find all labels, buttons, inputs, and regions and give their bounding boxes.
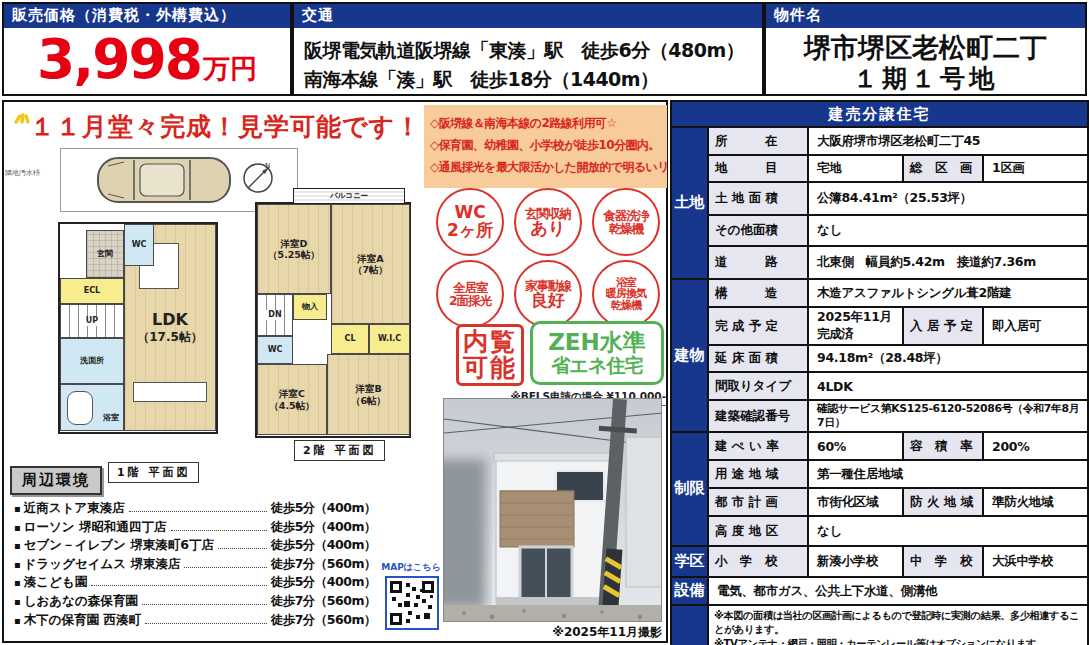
kitchen-counter	[133, 382, 207, 402]
spec-value: 木造アスファルトシングル葺2階建	[808, 279, 1088, 307]
badge-wc: WC2ヶ所	[436, 188, 504, 256]
property-name-line1: 堺市堺区老松町二丁	[766, 32, 1085, 64]
spec-value: 即入居可	[983, 307, 1088, 345]
spec-label: 構 造	[708, 279, 808, 307]
room-genkan: 玄関	[86, 230, 124, 278]
room-a: 洋室A（7帖）	[331, 204, 410, 324]
note-line: ※TVアンテナ・網戸・照明・カーテンレール等はオプションになります。	[714, 637, 1082, 645]
spec-label: 完 成 予 定	[708, 307, 808, 345]
badge-dishwasher: 食器洗浄乾燥機	[592, 188, 660, 256]
access-line-2: 南海本線「湊」駅 徒歩18分（1440m）	[304, 65, 752, 94]
plan1-caption: 1階 平面図	[108, 462, 199, 483]
spec-value: 4LDK	[808, 372, 1088, 400]
spec-label: 防 火 地 域	[903, 488, 983, 516]
badge-bath-dryer: 浴室暖房換気乾燥機	[592, 260, 660, 328]
spec-table: 建売分譲住宅 土地 所 在 大阪府堺市堺区老松町二丁45 地 目 宅地 総 区 …	[670, 100, 1089, 645]
room-senmenjo: 洗面所	[60, 338, 124, 384]
spec-value: 確認サービス第KS125-6120-52086号（令和7年8月7日）	[808, 400, 1088, 432]
plan-note: 隣地汚水枡	[5, 168, 40, 178]
price-header: 販売価格（消費税・外構費込）	[4, 4, 290, 28]
real-estate-flyer: 販売価格（消費税・外構費込） 3,998 万円 交通 阪堺電気軌道阪堺線「東湊」…	[0, 0, 1089, 645]
spec-group-equip: 設備	[671, 577, 708, 605]
spec-value: 1区画	[983, 155, 1088, 182]
badge-daylight: 全居室2面採光	[436, 260, 504, 328]
spec-label: その他面積	[708, 215, 808, 246]
headline: １１月堂々完成！見学可能です！	[30, 110, 421, 143]
spec-label: 所 在	[708, 127, 808, 155]
property-name-header: 物件名	[766, 4, 1085, 28]
access-box: 交通 阪堺電気軌道阪堺線「東湊」駅 徒歩6分（480m） 南海本線「湊」駅 徒歩…	[292, 2, 764, 96]
spec-label: 入 居 予 定	[903, 307, 983, 345]
spec-notes: ※本図の面積は当社の区画計画によるもので登記時に実測の結果、多少相違することがあ…	[708, 605, 1088, 645]
spec-value: 60%	[808, 432, 903, 460]
spec-label: 建 ぺ い 率	[708, 432, 808, 460]
spec-value: 200%	[983, 432, 1088, 460]
spec-label: 間取りタイプ	[708, 372, 808, 400]
spec-label: 道 路	[708, 246, 808, 279]
room-monoire: 物入	[293, 294, 327, 320]
spec-label: 延 床 面 積	[708, 345, 808, 372]
note-line: ※本図の面積は当社の区画計画によるもので登記時に実測の結果、多少相違することがあ…	[714, 609, 1082, 637]
spec-value: 大阪府堺市堺区老松町二丁45	[808, 127, 1088, 155]
feature-point-1: ◇阪堺線＆南海本線の2路線利用可☆	[430, 112, 661, 134]
room-b: 洋室B（6帖）	[327, 354, 410, 435]
room-balcony: バルコニー	[293, 188, 405, 204]
floorplan-2f: バルコニー 洋室D（5.25帖） 洋室A（7帖） DN 物入 WC CL W.I…	[255, 202, 411, 438]
spec-value: 第一種住居地域	[808, 460, 1088, 488]
feature-point-2: ◇保育園、幼稚園、小学校が徒歩10分圏内。	[430, 134, 661, 156]
access-header: 交通	[294, 4, 762, 28]
badge-genkan-storage: 玄関収納あり	[514, 188, 582, 256]
spec-value: 公簿84.41m²（25.53坪）	[808, 182, 1088, 215]
spec-label: 都 市 計 画	[708, 488, 808, 516]
spec-value: 大浜中学校	[983, 546, 1088, 577]
room-wc-1f: WC	[124, 224, 154, 266]
spec-group-land: 土地	[671, 127, 708, 279]
svg-text:N: N	[265, 162, 270, 170]
compass-icon: N	[242, 162, 274, 194]
price-unit: 万円	[203, 51, 257, 87]
spec-value: 新湊小学校	[808, 546, 903, 577]
floorplan-1f: LDK （17.5帖） WC 玄関 ECL UP 洗面所 浴室	[58, 222, 218, 434]
price-box: 販売価格（消費税・外構費込） 3,998 万円	[2, 2, 292, 96]
room-cl: CL	[331, 324, 369, 354]
spec-label: 高 度 地 区	[708, 516, 808, 546]
photo-caption: ※2025年11月撮影	[504, 624, 662, 641]
spec-value: 2025年11月完成済	[808, 307, 903, 345]
spec-group-school: 学区	[671, 546, 708, 577]
stairs-dn: DN	[257, 294, 293, 336]
list-item: ▪近商ストア東湊店徒歩5分（400m）	[14, 500, 376, 519]
list-item: ▪ドラッグセイムス 堺東湊店徒歩7分（560m）	[14, 556, 376, 575]
list-item: ▪木下の保育園 西湊町徒歩7分（560m）	[14, 612, 376, 631]
spec-group-limits: 制限	[671, 432, 708, 546]
car-topview-illustration	[94, 152, 234, 208]
spec-label: 小 学 校	[708, 546, 808, 577]
spec-group-building: 建物	[671, 279, 708, 432]
room-wic: W.I.C	[369, 324, 410, 354]
property-name-box: 物件名 堺市堺区老松町二丁 １期１号地	[764, 2, 1087, 96]
bathtub-icon	[67, 391, 93, 425]
spec-value: 94.18m²（28.48坪）	[808, 345, 1088, 372]
room-bathroom: 浴室	[60, 384, 124, 431]
spec-label: 用 途 地 域	[708, 460, 808, 488]
property-name-line2: １期１号地	[766, 64, 1085, 94]
access-line-1: 阪堺電気軌道阪堺線「東湊」駅 徒歩6分（480m）	[304, 36, 752, 65]
main-left-panel: １１月堂々完成！見学可能です！ ◇阪堺線＆南海本線の2路線利用可☆ ◇保育園、幼…	[2, 100, 668, 643]
spec-value: なし	[808, 215, 1088, 246]
plan2-caption: 2階 平面図	[294, 440, 385, 461]
spec-label: 建築確認番号	[708, 400, 808, 432]
spec-title: 建売分譲住宅	[671, 101, 1088, 127]
open-house-stamp: 内覧可能	[456, 324, 524, 386]
room-ecl: ECL	[60, 278, 124, 304]
badge-housework-flow: 家事動線良好	[514, 260, 582, 328]
list-item: ▪湊こども園徒歩5分（400m）	[14, 574, 376, 593]
qr-pattern	[390, 581, 434, 625]
feature-points-box: ◇阪堺線＆南海本線の2路線利用可☆ ◇保育園、幼稚園、小学校が徒歩10分圏内。 …	[424, 105, 667, 188]
spec-notes-sidebar	[671, 605, 708, 645]
list-item: ▪しおあなの森保育園徒歩7分（560m）	[14, 593, 376, 612]
spec-label: 中 学 校	[903, 546, 983, 577]
map-label: MAPはこちら	[379, 561, 443, 574]
surroundings-list: ▪近商ストア東湊店徒歩5分（400m） ▪ローソン 堺昭和通四丁店徒歩5分（40…	[14, 500, 376, 630]
surroundings-title: 周辺環境	[10, 466, 102, 495]
spec-value: 市街化区域	[808, 488, 903, 516]
spec-label: 地 目	[708, 155, 808, 182]
list-item: ▪セブン－イレブン 堺東湊町6丁店徒歩5分（400m）	[14, 537, 376, 556]
feature-badges: WC2ヶ所 玄関収納あり 食器洗浄乾燥機 全居室2面採光 家事動線良好 浴室暖房…	[436, 188, 664, 328]
price-amount: 3,998	[37, 32, 201, 87]
spec-label: 容 積 率	[903, 432, 983, 460]
spec-value: 宅地	[808, 155, 903, 182]
room-wc-2f: WC	[257, 336, 293, 364]
spec-value: なし	[808, 516, 1088, 546]
room-c: 洋室C（4.5帖）	[257, 364, 327, 435]
room-d: 洋室D（5.25帖）	[257, 204, 331, 294]
exterior-photo	[443, 398, 662, 622]
spec-value: 電気、都市ガス、公共上下水道、側溝他	[708, 577, 1088, 605]
list-item: ▪ローソン 堺昭和通四丁店徒歩5分（400m）	[14, 519, 376, 538]
feature-point-3: ◇通風採光を最大限活かした開放的で明るいリビング	[430, 156, 661, 178]
spec-label: 総 区 画	[903, 155, 983, 182]
spec-label: 土 地 面 積	[708, 182, 808, 215]
qr-code	[385, 576, 439, 630]
zeh-stamp: ZEH水準省エネ住宅	[530, 321, 664, 385]
spec-value: 準防火地域	[983, 488, 1088, 516]
spec-value: 北東側 幅員約5.42m 接道約7.36m	[808, 246, 1088, 279]
stairs-up: UP	[60, 304, 124, 338]
